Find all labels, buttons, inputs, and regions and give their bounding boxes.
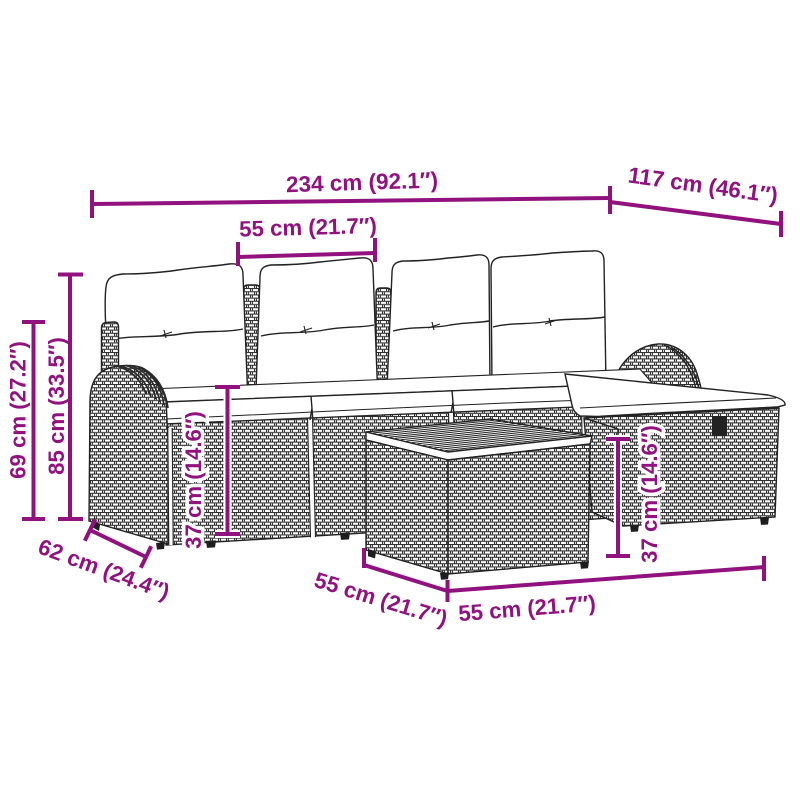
svg-text:37 cm (14.6″): 37 cm (14.6″) <box>181 411 206 549</box>
svg-text:55 cm (21.7″): 55 cm (21.7″) <box>239 213 377 242</box>
svg-text:69 cm (27.2″): 69 cm (27.2″) <box>5 341 30 479</box>
svg-text:37 cm (14.6″): 37 cm (14.6″) <box>637 425 662 563</box>
svg-text:85 cm (33.5″): 85 cm (33.5″) <box>44 337 69 475</box>
svg-text:234 cm (92.1″): 234 cm (92.1″) <box>286 167 439 197</box>
